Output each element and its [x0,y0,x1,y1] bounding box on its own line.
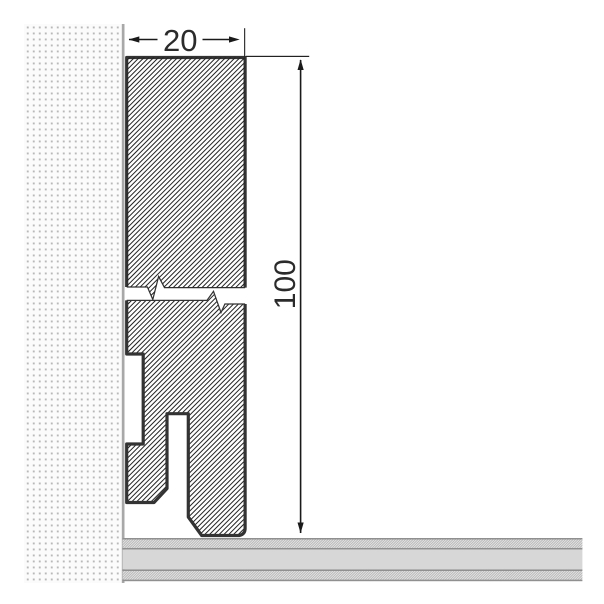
svg-text:100: 100 [269,259,302,309]
svg-text:20: 20 [163,23,197,58]
